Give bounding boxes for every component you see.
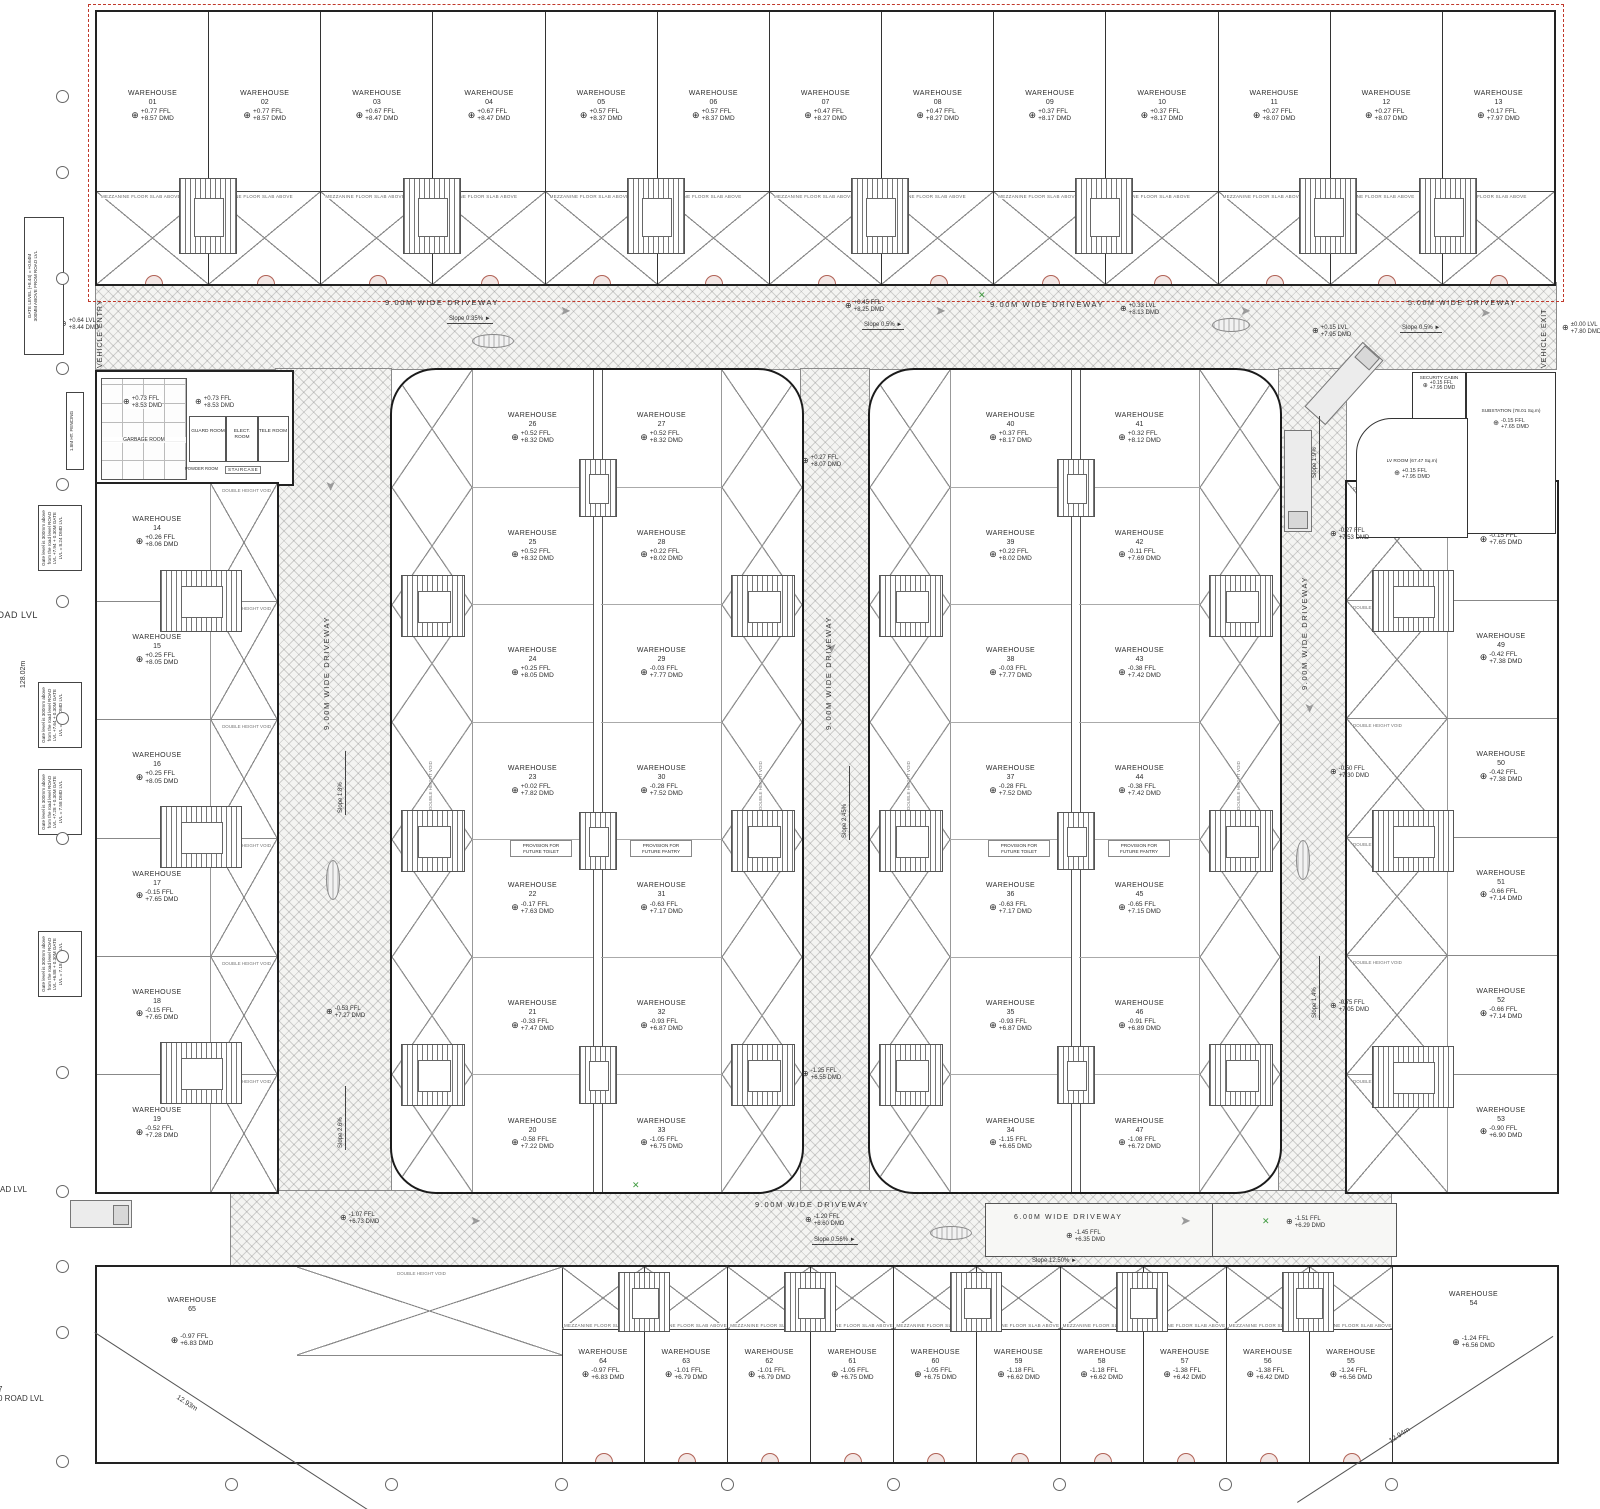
- level-target-icon: ⊕: [640, 433, 648, 442]
- level-target-icon: ⊕: [136, 891, 144, 900]
- warehouse-label: WAREHOUSE 02 ⊕ +0.77 FFL+8.57 DMD: [209, 90, 320, 122]
- room-label: SUBSTATION (78.01 Sq.m): [1467, 409, 1555, 415]
- level-target-icon: ⊕: [989, 1138, 997, 1147]
- level-target-icon: ⊕: [136, 773, 144, 782]
- warehouse-unit: WAREHOUSE26 ⊕ +0.52 FFL+8.32 DMD: [472, 370, 593, 488]
- void-note: DOUBLE HEIGHT VOID: [1353, 960, 1402, 965]
- warehouse-unit: WAREHOUSE25 ⊕ +0.52 FFL+8.32 DMD: [472, 488, 593, 606]
- level-target-icon: ⊕: [136, 655, 144, 664]
- void-note: DOUBLE HEIGHT VOID: [222, 488, 271, 493]
- staircase-core: [401, 1044, 465, 1106]
- level-target-icon: ⊕: [1480, 653, 1488, 662]
- door-swing-arc: [257, 275, 275, 284]
- grid-bubble: [1053, 1478, 1066, 1491]
- staircase-core: [579, 459, 617, 517]
- room-label: ELECT. ROOM: [226, 429, 258, 441]
- level-target-icon: ⊕: [1394, 470, 1400, 478]
- level-annotation: ⊕ +0.27 FFL+8.07 DMD: [1365, 108, 1408, 122]
- level-target-icon: ⊕: [1118, 668, 1126, 677]
- truck-outline: [70, 1200, 132, 1228]
- warehouse-unit: WAREHOUSE31 ⊕ -0.63 FFL+7.17 DMD: [601, 840, 722, 958]
- gate-level-note: Gate level is 300mm above from the road …: [38, 505, 82, 571]
- level-target-icon: ⊕: [1480, 890, 1488, 899]
- level-target-icon: ⊕: [1480, 535, 1488, 544]
- driveway-name: 5.00M WIDE DRIVEWAY: [1408, 300, 1517, 307]
- level-marker: ⊕ -1.07 FFL+6.73 DMD: [340, 1212, 379, 1225]
- warehouse-unit: WAREHOUSE40 ⊕ +0.37 FFL+8.17 DMD: [950, 370, 1071, 488]
- staircase-core: [879, 575, 943, 637]
- level-target-icon: ⊕: [1480, 1127, 1488, 1136]
- level-annotation: ⊕ +0.37 FFL+8.17 DMD: [1029, 108, 1072, 122]
- level-target-icon: ⊕: [1330, 1370, 1338, 1379]
- void-note: DOUBLE HEIGHT VOID: [397, 1271, 446, 1276]
- level-target-icon: ⊕: [136, 537, 144, 546]
- staircase-core: [1075, 178, 1133, 254]
- warehouse-unit: WAREHOUSE38 ⊕ -0.03 FFL+7.77 DMD: [950, 605, 1071, 723]
- level-target-icon: ⊕: [582, 1370, 590, 1379]
- level-target-icon: ⊕: [468, 111, 476, 120]
- level-annotation: ⊕ +0.67 FFL+8.47 DMD: [356, 108, 399, 122]
- level-target-icon: ⊕: [692, 111, 700, 120]
- slope-label: Slope 0.56% ►: [812, 1237, 858, 1245]
- level-target-icon: ⊕: [1562, 324, 1569, 333]
- level-target-icon: ⊕: [802, 457, 809, 466]
- staircase-core: [160, 570, 242, 632]
- level-target-icon: ⊕: [640, 668, 648, 677]
- slope-label: Slope 1.4%: [1312, 956, 1320, 1020]
- grid-bubble: [56, 478, 69, 491]
- level-target-icon: ⊕: [802, 1070, 809, 1079]
- driveway-name: 9.00M WIDE DRIVEWAY: [322, 560, 334, 730]
- level-target-icon: ⊕: [136, 1128, 144, 1137]
- warehouse-label: WAREHOUSE 09 ⊕ +0.37 FFL+8.17 DMD: [994, 90, 1105, 122]
- warehouse-label: WAREHOUSE 05 ⊕ +0.57 FFL+8.37 DMD: [546, 90, 657, 122]
- staircase-core: [879, 810, 943, 872]
- level-marker: ⊕ +0.73 FFL+8.53 DMD: [195, 396, 234, 409]
- level-marker: ⊕ -0.50 FFL+7.30 DMD: [1330, 766, 1369, 779]
- warehouse-label: WAREHOUSE 19 ⊕ -0.52 FFL+7.28 DMD: [107, 1107, 207, 1139]
- site-dimension: 128.02m: [20, 642, 32, 688]
- level-target-icon: ⊕: [511, 668, 519, 677]
- level-target-icon: ⊕: [1365, 111, 1373, 120]
- level-annotation: ⊕ +0.47 FFL+8.27 DMD: [916, 108, 959, 122]
- grid-bubble: [225, 1478, 238, 1491]
- warehouse-label: WAREHOUSE 03 ⊕ +0.67 FFL+8.47 DMD: [321, 90, 432, 122]
- double-height-void: [297, 1267, 562, 1356]
- void-note: DOUBLE HEIGHT VOID: [906, 761, 911, 810]
- driveway-name: 9.00M WIDE DRIVEWAY: [1300, 520, 1312, 690]
- staircase-core: [1419, 178, 1477, 254]
- warehouse-unit: WAREHOUSE41 ⊕ +0.32 FFL+8.12 DMD: [1079, 370, 1200, 488]
- door-swing-arc: [927, 1453, 945, 1462]
- staircase-core: [403, 178, 461, 254]
- level-target-icon: ⊕: [511, 1138, 519, 1147]
- level-target-icon: ⊕: [1066, 1232, 1073, 1241]
- left-driveway: [275, 368, 392, 1267]
- level-target-icon: ⊕: [195, 398, 202, 407]
- flow-arrow-icon: ➤: [560, 303, 571, 319]
- slope-label: Slope 2.45%: [842, 766, 850, 840]
- staircase-core: [1057, 459, 1095, 517]
- level-target-icon: ⊕: [989, 433, 997, 442]
- level-annotation: ⊕ +0.57 FFL+8.37 DMD: [692, 108, 735, 122]
- void-note: DOUBLE HEIGHT VOID: [1353, 723, 1402, 728]
- warehouse-unit: WAREHOUSE32 ⊕ -0.93 FFL+6.87 DMD: [601, 958, 722, 1076]
- flow-arrow-icon: ➤: [935, 303, 946, 319]
- grid-bubble: [56, 166, 69, 179]
- level-annotation: ⊕ +0.17 FFL+7.97 DMD: [1477, 108, 1520, 122]
- level-target-icon: ⊕: [804, 111, 812, 120]
- warehouse-label: WAREHOUSE 13 ⊕ +0.17 FFL+7.97 DMD: [1443, 90, 1554, 122]
- mezzanine-note: MEZZANINE FLOOR SLAB ABOVE: [325, 194, 405, 199]
- level-marker: ⊕ +0.27 FFL+8.07 DMD: [802, 455, 841, 468]
- slope-label: Slope 0.35% ►: [447, 316, 493, 324]
- level-target-icon: ⊕: [136, 1009, 144, 1018]
- level-target-icon: ⊕: [511, 550, 519, 559]
- flow-arrow-icon: ➤: [322, 481, 338, 492]
- door-swing-arc: [1011, 1453, 1029, 1462]
- survey-mark-icon: ✕: [978, 290, 986, 301]
- warehouse-unit: WAREHOUSE35 ⊕ -0.93 FFL+6.87 DMD: [950, 958, 1071, 1076]
- grid-bubble: [721, 1478, 734, 1491]
- warehouse-label: WAREHOUSE 06 ⊕ +0.57 FFL+8.37 DMD: [658, 90, 769, 122]
- warehouse-label: WAREHOUSE 16 ⊕ +0.25 FFL+8.05 DMD: [107, 752, 207, 784]
- staircase-core: [731, 810, 795, 872]
- room-label: STAIRCASE: [225, 466, 261, 474]
- level-target-icon: ⊕: [511, 786, 519, 795]
- level-marker: ⊕ -0.27 FFL+7.53 DMD: [1330, 528, 1369, 541]
- slope-label: Slope 0.5% ►: [1400, 325, 1442, 333]
- grid-bubble: [1219, 1478, 1232, 1491]
- level-target-icon: ⊕: [1080, 1370, 1088, 1379]
- level-target-icon: ⊕: [131, 111, 139, 120]
- level-target-icon: ⊕: [1493, 420, 1499, 428]
- level-annotation: ⊕ +0.47 FFL+8.27 DMD: [804, 108, 847, 122]
- staircase-core: [731, 575, 795, 637]
- warehouse-unit: WAREHOUSE 65 ⊕ -0.97 FFL+6.83 DMD DOUBLE…: [97, 1267, 563, 1462]
- warehouse-unit: WAREHOUSE47 ⊕ -1.08 FFL+6.72 DMD: [1079, 1075, 1200, 1192]
- warehouse-unit: WAREHOUSE30 ⊕ -0.28 FFL+7.52 DMD: [601, 723, 722, 841]
- staircase-core: [1209, 575, 1273, 637]
- level-target-icon: ⊕: [1330, 530, 1337, 539]
- survey-mark-icon: ✕: [632, 1180, 640, 1191]
- door-swing-arc: [145, 275, 163, 284]
- slope-arrow-icon: ►: [1071, 1258, 1077, 1264]
- warehouse-unit: WAREHOUSE36 ⊕ -0.63 FFL+7.17 DMD: [950, 840, 1071, 958]
- level-target-icon: ⊕: [1118, 1021, 1126, 1030]
- guard-room: GUARD ROOM: [189, 416, 227, 462]
- grid-bubble: [56, 1326, 69, 1339]
- warehouse-unit: WAREHOUSE42 ⊕ -0.11 FFL+7.69 DMD: [1079, 488, 1200, 606]
- speed-bump: [1296, 840, 1310, 880]
- road-level-label: ROAD LVL: [0, 1185, 27, 1194]
- gate-level-note: Gate level is 300mm above from the road …: [38, 769, 82, 835]
- driveway-name: 9.00M WIDE DRIVEWAY: [385, 298, 499, 307]
- void-note: DOUBLE HEIGHT VOID: [428, 761, 433, 810]
- driveway-name: 9.00M WIDE DRIVEWAY: [824, 560, 836, 730]
- level-target-icon: ⊕: [640, 1138, 648, 1147]
- mezzanine-note: MEZZANINE FLOOR SLAB ABOVE: [774, 194, 854, 199]
- tele-room: TELE ROOM: [257, 416, 289, 462]
- level-target-icon: ⊕: [989, 1021, 997, 1030]
- level-target-icon: ⊕: [340, 1214, 347, 1223]
- level-target-icon: ⊕: [665, 1370, 673, 1379]
- level-annotation: ⊕ +0.77 FFL+8.57 DMD: [243, 108, 286, 122]
- level-target-icon: ⊕: [1141, 111, 1149, 120]
- level-target-icon: ⊕: [989, 668, 997, 677]
- level-marker: ⊕ -1.25 FFL+6.55 DMD: [802, 1068, 841, 1081]
- staircase-core: [1372, 810, 1454, 872]
- slope-label: Slope 2.6%: [338, 1086, 346, 1150]
- grid-bubble: [56, 832, 69, 845]
- level-target-icon: ⊕: [1286, 1218, 1293, 1227]
- warehouse-label: WAREHOUSE 50 ⊕ -0.42 FFL+7.38 DMD: [1453, 751, 1549, 783]
- warehouse-label: WAREHOUSE 53 ⊕ -0.90 FFL+6.90 DMD: [1453, 1107, 1549, 1139]
- door-swing-arc: [1094, 1453, 1112, 1462]
- level-target-icon: ⊕: [1480, 1009, 1488, 1018]
- warehouse-unit: WAREHOUSE34 ⊕ -1.15 FFL+6.65 DMD: [950, 1075, 1071, 1192]
- slope-label: Slope 12.50% ►: [1030, 1258, 1079, 1266]
- warehouse-label: WAREHOUSE 10 ⊕ +0.37 FFL+8.17 DMD: [1106, 90, 1217, 122]
- level-target-icon: ⊕: [805, 1216, 812, 1225]
- level-marker: ⊕ -1.45 FFL+6.35 DMD: [1066, 1230, 1105, 1243]
- driveway-name: 9.00M WIDE DRIVEWAY: [990, 300, 1104, 309]
- warehouse-unit: WAREHOUSE24 ⊕ +0.25 FFL+8.05 DMD: [472, 605, 593, 723]
- driveway-name: 6.00M WIDE DRIVEWAY: [1014, 1214, 1123, 1221]
- speed-bump: [1212, 318, 1250, 332]
- room-label: GUARD ROOM: [190, 429, 226, 435]
- speed-bump: [326, 860, 340, 900]
- level-target-icon: ⊕: [831, 1370, 839, 1379]
- level-target-icon: ⊕: [1246, 1370, 1254, 1379]
- level-target-icon: ⊕: [1118, 550, 1126, 559]
- grid-bubble: [56, 90, 69, 103]
- level-marker: ⊕ -1.20 FFL+6.60 DMD: [805, 1214, 844, 1227]
- level-marker: ⊕ -0.53 FFL+7.27 DMD: [326, 1006, 365, 1019]
- staircase-core: [1299, 178, 1357, 254]
- level-target-icon: ⊕: [1029, 111, 1037, 120]
- staircase-core: [851, 178, 909, 254]
- flow-arrow-icon: ➤: [1240, 303, 1251, 319]
- staircase-core: [1282, 1272, 1334, 1332]
- warehouse-label: WAREHOUSE 08 ⊕ +0.47 FFL+8.27 DMD: [882, 90, 993, 122]
- level-target-icon: ⊕: [1477, 111, 1485, 120]
- level-marker: ⊕ -0.75 FFL+7.05 DMD: [1330, 1000, 1369, 1013]
- room-label: LV ROOM (67.47 Sq.m): [1357, 459, 1467, 465]
- provision-note: PROVISION FOR FUTURE PANTRY: [630, 840, 692, 857]
- level-target-icon: ⊕: [1312, 327, 1319, 336]
- warehouse-unit: WAREHOUSE22 ⊕ -0.17 FFL+7.63 DMD: [472, 840, 593, 958]
- speed-bump: [930, 1226, 972, 1240]
- level-annotation: ⊕ +0.37 FFL+8.17 DMD: [1141, 108, 1184, 122]
- grid-bubble: [56, 1185, 69, 1198]
- level-target-icon: ⊕: [916, 111, 924, 120]
- flow-arrow-icon: ➤: [1180, 1213, 1191, 1229]
- block-a-left-column: WAREHOUSE26 ⊕ +0.52 FFL+8.32 DMD WAREHOU…: [472, 370, 593, 1192]
- level-target-icon: ⊕: [640, 1021, 648, 1030]
- warehouse-unit: WAREHOUSE21 ⊕ -0.33 FFL+7.47 DMD: [472, 958, 593, 1076]
- level-annotation: ⊕ +0.77 FFL+8.57 DMD: [131, 108, 174, 122]
- warehouse-label: WAREHOUSE 12 ⊕ +0.27 FFL+8.07 DMD: [1331, 90, 1442, 122]
- block-a-right-column: WAREHOUSE27 ⊕ +0.52 FFL+8.32 DMD WAREHOU…: [601, 370, 722, 1192]
- level-target-icon: ⊕: [326, 1008, 333, 1017]
- staircase-core: [1057, 1046, 1095, 1104]
- slope-label: Slope 1.8%: [338, 751, 346, 815]
- flow-arrow-icon: ➤: [1301, 703, 1317, 714]
- level-target-icon: ⊕: [748, 1370, 756, 1379]
- staircase-core: [160, 1042, 242, 1104]
- void-note: DOUBLE HEIGHT VOID: [222, 724, 271, 729]
- flow-arrow-icon: ➤: [1480, 305, 1491, 321]
- level-target-icon: ⊕: [1118, 1138, 1126, 1147]
- level-target-icon: ⊕: [989, 903, 997, 912]
- warehouse-unit: WAREHOUSE28 ⊕ +0.22 FFL+8.02 DMD: [601, 488, 722, 606]
- warehouse-unit: WAREHOUSE45 ⊕ -0.65 FFL+7.15 DMD: [1079, 840, 1200, 958]
- warehouse-unit: WAREHOUSE43 ⊕ -0.38 FFL+7.42 DMD: [1079, 605, 1200, 723]
- warehouse-label: WAREHOUSE 07 ⊕ +0.47 FFL+8.27 DMD: [770, 90, 881, 122]
- staircase-core: [627, 178, 685, 254]
- gate-level-note: GATE LEVEL (+8.44) = +0.64M300MM ABOVE F…: [24, 217, 64, 355]
- warehouse-label: WAREHOUSE 18 ⊕ -0.15 FFL+7.65 DMD: [107, 989, 207, 1021]
- door-swing-arc: [595, 1453, 613, 1462]
- grid-bubble: [385, 1478, 398, 1491]
- staircase-core: [579, 1046, 617, 1104]
- flow-arrow-icon: ➤: [470, 1213, 481, 1229]
- grid-bubble: [555, 1478, 568, 1491]
- level-target-icon: ⊕: [243, 111, 251, 120]
- warehouse-label: WAREHOUSE 51 ⊕ -0.66 FFL+7.14 DMD: [1453, 870, 1549, 902]
- level-target-icon: ⊕: [580, 111, 588, 120]
- level-target-icon: ⊕: [914, 1370, 922, 1379]
- speed-bump: [472, 334, 514, 348]
- level-target-icon: ⊕: [171, 1336, 179, 1345]
- warehouse-unit: WAREHOUSE 54 ⊕ -1.24 FFL+6.56 DMD: [1392, 1267, 1554, 1462]
- provision-note: PROVISION FOR FUTURE TOILET: [988, 840, 1050, 857]
- level-marker: ⊕ +0.15 LVL+7.95 DMD: [1312, 325, 1351, 338]
- slope-arrow-icon: ►: [485, 316, 491, 322]
- security-cabin: SECURITY CABIN ⊕ +0.15 FFL+7.95 DMD: [1412, 372, 1466, 420]
- staircase-core: [950, 1272, 1002, 1332]
- level-target-icon: ⊕: [511, 1021, 519, 1030]
- staircase-core: [1372, 1046, 1454, 1108]
- block-b-left-column: WAREHOUSE40 ⊕ +0.37 FFL+8.17 DMD WAREHOU…: [950, 370, 1071, 1192]
- level-marker: ⊕ +0.45 FFL+8.25 DMD: [845, 300, 884, 313]
- garbage-room: GARBAGE ROOM: [101, 378, 187, 480]
- fencing-note: 1.8M HT. FENCING: [66, 392, 84, 470]
- staircase-core: [1372, 570, 1454, 632]
- elect-room: ELECT. ROOM: [225, 416, 259, 462]
- grid-bubble: [56, 1455, 69, 1468]
- void-note: DOUBLE HEIGHT VOID: [758, 761, 763, 810]
- level-target-icon: ⊕: [1118, 433, 1126, 442]
- void-note: DOUBLE HEIGHT VOID: [1236, 761, 1241, 810]
- staircase-core: [401, 810, 465, 872]
- substation-room: SUBSTATION (78.01 Sq.m) ⊕ -0.15 FFL+7.65…: [1466, 372, 1556, 534]
- level-target-icon: ⊕: [997, 1370, 1005, 1379]
- staircase-core: [160, 806, 242, 868]
- ramp-driveway: 6.00M WIDE DRIVEWAY ⊕ -1.45 FFL+6.35 DMD: [985, 1203, 1397, 1257]
- level-target-icon: ⊕: [123, 398, 130, 407]
- road-level-label: ROAD LVL: [0, 610, 38, 620]
- grid-bubble: [56, 1260, 69, 1273]
- staircase-core: [1057, 812, 1095, 870]
- warehouse-label: WAREHOUSE 15 ⊕ +0.25 FFL+8.05 DMD: [107, 634, 207, 666]
- level-target-icon: ⊕: [640, 786, 648, 795]
- grid-bubble: [887, 1478, 900, 1491]
- level-marker: ⊕ +0.73 FFL+8.53 DMD: [123, 396, 162, 409]
- staircase-core: [784, 1272, 836, 1332]
- provision-note: PROVISION FOR FUTURE TOILET: [510, 840, 572, 857]
- level-marker: ⊕ ±0.00 LVL+7.80 DMD: [1562, 322, 1600, 335]
- level-target-icon: ⊕: [1163, 1370, 1171, 1379]
- warehouse-block-b: DOUBLE HEIGHT VOID DOUBLE HEIGHT VOID WA…: [868, 368, 1282, 1194]
- warehouse-unit: WAREHOUSE46 ⊕ -0.91 FFL+6.89 DMD: [1079, 958, 1200, 1076]
- level-annotation: ⊕ +0.67 FFL+8.47 DMD: [468, 108, 511, 122]
- staircase-core: [179, 178, 237, 254]
- gate-level-note: Gate level is 300mm above from the road …: [38, 931, 82, 997]
- warehouse-unit: WAREHOUSE37 ⊕ -0.28 FFL+7.52 DMD: [950, 723, 1071, 841]
- warehouse-unit: WAREHOUSE29 ⊕ -0.03 FFL+7.77 DMD: [601, 605, 722, 723]
- grid-bubble: [56, 712, 69, 725]
- mezzanine-note: MEZZANINE FLOOR SLAB ABOVE: [998, 194, 1078, 199]
- void-note: DOUBLE HEIGHT VOID: [222, 961, 271, 966]
- survey-mark-icon: ✕: [1262, 1216, 1270, 1227]
- slope-arrow-icon: ►: [850, 1237, 856, 1243]
- staircase-core: [1116, 1272, 1168, 1332]
- lv-room: LV ROOM (67.47 Sq.m) ⊕ +0.15 FFL+7.95 DM…: [1356, 418, 1468, 538]
- level-marker: ⊕ -1.51 FFL+6.29 DMD: [1286, 1216, 1325, 1229]
- grid-bubble: [56, 272, 69, 285]
- grid-bubble: [1385, 1478, 1398, 1491]
- room-label: POWDER ROOM: [185, 466, 218, 471]
- level-annotation: ⊕ +0.57 FFL+8.37 DMD: [580, 108, 623, 122]
- facility-block: GARBAGE ROOM ⊕ +0.73 FFL+8.53 DMD ⊕ +0.7…: [95, 370, 294, 486]
- door-swing-arc: [1260, 1453, 1278, 1462]
- door-swing-arc: [1177, 1453, 1195, 1462]
- warehouse-unit: WAREHOUSE27 ⊕ +0.52 FFL+8.32 DMD: [601, 370, 722, 488]
- warehouse-label: WAREHOUSE 17 ⊕ -0.15 FFL+7.65 DMD: [107, 871, 207, 903]
- slope-arrow-icon: ►: [896, 322, 902, 328]
- room-label: GARBAGE ROOM: [102, 437, 186, 443]
- level-target-icon: ⊕: [1480, 772, 1488, 781]
- level-target-icon: ⊕: [845, 302, 852, 311]
- warehouse-site-plan: 1M WIDE SETBACK WAREHOUSE 01 ⊕ +0.77 FFL…: [0, 0, 1600, 1509]
- level-target-icon: ⊕: [989, 786, 997, 795]
- driveway-name: 9.00M WIDE DRIVEWAY: [755, 1200, 869, 1209]
- staircase-core: [579, 812, 617, 870]
- level-target-icon: ⊕: [1330, 768, 1337, 777]
- slope-label: Slope 0.5% ►: [862, 322, 904, 330]
- warehouse-unit: WAREHOUSE23 ⊕ +0.02 FFL+7.82 DMD: [472, 723, 593, 841]
- grid-bubble: [56, 595, 69, 608]
- level-target-icon: ⊕: [511, 433, 519, 442]
- grid-bubble: [56, 362, 69, 375]
- level-target-icon: ⊕: [1330, 1002, 1337, 1011]
- warehouse-label: WAREHOUSE 52 ⊕ -0.66 FFL+7.14 DMD: [1453, 988, 1549, 1020]
- door-swing-arc: [818, 275, 836, 284]
- warehouse-label: WAREHOUSE 11 ⊕ +0.27 FFL+8.07 DMD: [1219, 90, 1330, 122]
- level-target-icon: ⊕: [640, 903, 648, 912]
- room-label: TELE ROOM: [258, 429, 288, 435]
- door-swing-arc: [930, 275, 948, 284]
- mezzanine-note: MEZZANINE FLOOR SLAB ABOVE: [101, 194, 181, 199]
- mezzanine-note: MEZZANINE FLOOR SLAB ABOVE: [550, 194, 630, 199]
- mezzanine-note: MEZZANINE FLOOR SLAB ABOVE: [1223, 194, 1303, 199]
- level-target-icon: ⊕: [989, 550, 997, 559]
- door-swing-arc: [844, 1453, 862, 1462]
- grid-bubble: [56, 950, 69, 963]
- level-target-icon: ⊕: [356, 111, 364, 120]
